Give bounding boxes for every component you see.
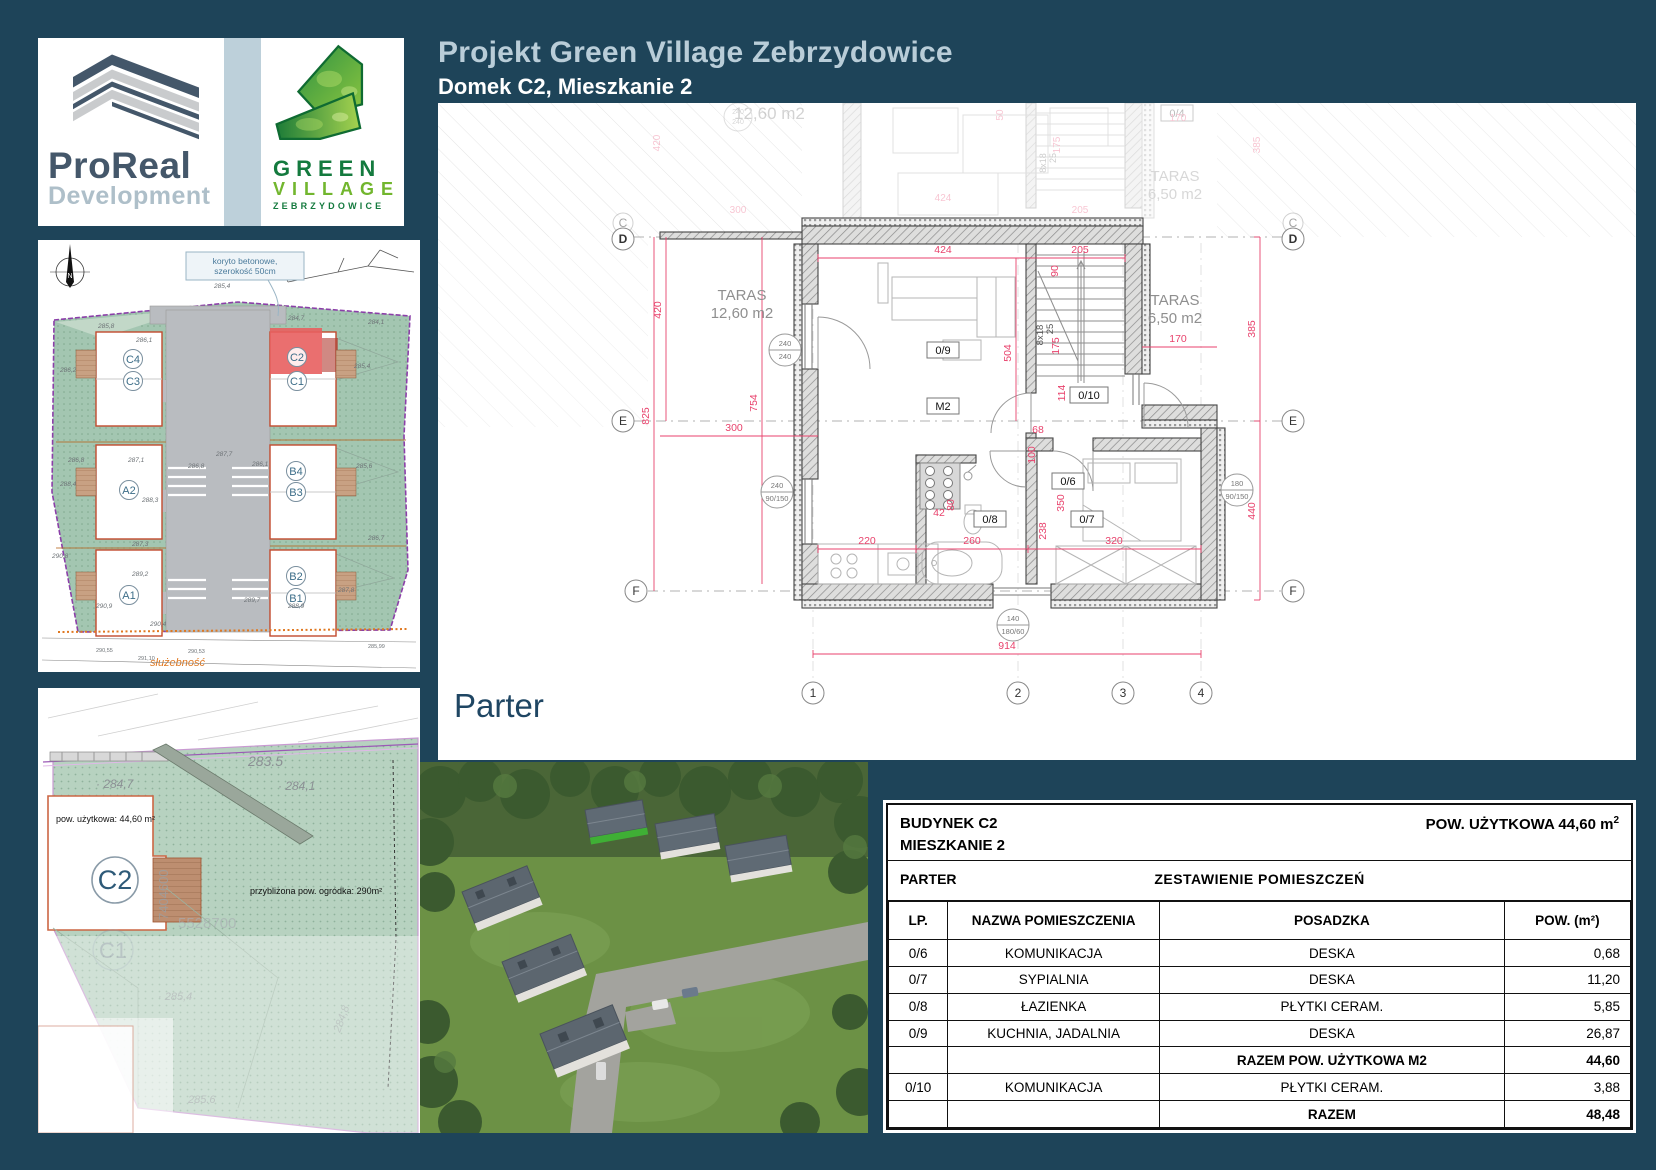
dim-label: 504 bbox=[1002, 344, 1014, 362]
page-subtitle: Domek C2, Mieszkanie 2 bbox=[438, 74, 953, 100]
cell-area: 48,48 bbox=[1504, 1101, 1630, 1128]
elevation-label: · 284,7 bbox=[96, 777, 135, 791]
cell-lp: 0/9 bbox=[889, 1020, 948, 1047]
grid-e-left: E bbox=[619, 414, 627, 428]
grid-f-right: F bbox=[1289, 584, 1296, 598]
window-label: 180/60 bbox=[1002, 627, 1025, 636]
grid-2: 2 bbox=[1015, 686, 1022, 700]
garden-plan-panel: pow. użytkowa: 44,60 m² C2 C1 7404600 55… bbox=[38, 688, 420, 1133]
survey-hatch bbox=[48, 694, 418, 742]
window-label: 180 bbox=[1231, 479, 1244, 488]
col-floor: POSADZKA bbox=[1159, 902, 1504, 940]
ghost-window-label: 240 bbox=[732, 109, 744, 116]
page-title: Projekt Green Village Zebrzydowice bbox=[438, 36, 953, 70]
estate-render-photo bbox=[420, 762, 868, 1133]
usable-area-label: pow. użytkowa: 44,60 m² bbox=[56, 814, 155, 824]
dim-label: 170 bbox=[1169, 333, 1187, 345]
dim-label: 350 bbox=[1055, 494, 1067, 512]
cell-lp bbox=[889, 1101, 948, 1128]
grid-4: 4 bbox=[1198, 686, 1205, 700]
cell-lp: 0/7 bbox=[889, 967, 948, 994]
window-label: 240 bbox=[779, 339, 792, 348]
project-sheet: { "header": { "title": "Projekt Green Vi… bbox=[0, 0, 1656, 1170]
garden-area-label: przybliżona pow. ogródka: 290m² bbox=[250, 886, 382, 896]
dim-label: 320 bbox=[1105, 535, 1123, 547]
room-label-06: 0/6 bbox=[1060, 476, 1075, 488]
table-row-grand-total: RAZEM 48,48 bbox=[889, 1101, 1631, 1128]
cell-floor: DESKA bbox=[1159, 967, 1504, 994]
ghost-window-label: 240 bbox=[732, 119, 744, 126]
dim-label: 175 bbox=[1050, 337, 1062, 355]
table-row: 0/7 SYPIALNIA DESKA 11,20 bbox=[889, 967, 1631, 994]
unit-label-c2: C2 bbox=[98, 865, 133, 895]
dim-label: 205 bbox=[1072, 205, 1089, 216]
cell-lp bbox=[889, 1047, 948, 1074]
elevation-label: 288,4 bbox=[59, 481, 77, 488]
room-label-10: 0/10 bbox=[1078, 390, 1099, 402]
site-hatch bbox=[1217, 103, 1636, 237]
ghost-area-label: 12,60 m2 bbox=[734, 104, 805, 123]
dim-label: 424 bbox=[934, 244, 952, 256]
grid-d-left: D bbox=[619, 232, 628, 246]
cell-name: SYPIALNIA bbox=[948, 967, 1159, 994]
cell-lp: 0/6 bbox=[889, 940, 948, 967]
cell-area: 44,60 bbox=[1504, 1047, 1630, 1074]
dim-label: 68 bbox=[1032, 424, 1044, 436]
grid-d-right: D bbox=[1289, 232, 1298, 246]
proreal-name: ProReal bbox=[48, 147, 224, 184]
survey-numbers: 290,55 291,10 290,53 285,99 bbox=[96, 644, 385, 662]
window-label: 90/150 bbox=[766, 494, 789, 503]
cell-name bbox=[948, 1047, 1159, 1074]
room-label-m2: M2 bbox=[935, 401, 950, 413]
cell-floor: PŁYTKI CERAM. bbox=[1159, 993, 1504, 1020]
windows bbox=[805, 304, 1139, 595]
dim-label: 385 bbox=[1252, 136, 1263, 153]
table-row-total: RAZEM POW. UŻYTKOWA M2 44,60 bbox=[889, 1047, 1631, 1074]
elevation-label: 288,3 bbox=[141, 497, 159, 504]
cell-name: KOMUNIKACJA bbox=[948, 940, 1159, 967]
grid-3: 3 bbox=[1120, 686, 1127, 700]
cell-lp: 0/10 bbox=[889, 1074, 948, 1101]
ghost-stairs-label: 25 bbox=[1048, 153, 1058, 163]
taras-left-label: TARAS bbox=[718, 287, 767, 304]
gv-village: VILLAGE bbox=[273, 180, 400, 200]
dim-label: 100 bbox=[1026, 446, 1038, 464]
elevation-label: 285,4 bbox=[353, 363, 371, 370]
elevation-label: 285,4 bbox=[213, 283, 231, 290]
dim-label: 80 bbox=[945, 499, 957, 511]
unit-b2: B2 bbox=[289, 571, 302, 583]
table-header-row: LP. NAZWA POMIESZCZENIA POSADZKA POW. (m… bbox=[889, 902, 1631, 940]
coordinate-vertical: 7404600 bbox=[156, 869, 171, 920]
taras-left-area: 12,60 m2 bbox=[711, 305, 774, 322]
elevation-label: 287,8 bbox=[337, 587, 355, 594]
dim-label: 385 bbox=[1246, 320, 1258, 338]
table-subheader: PARTER ZESTAWIENIE POMIESZCZEŃ bbox=[888, 861, 1631, 901]
unit-b3: B3 bbox=[289, 487, 302, 499]
unit-a1: A1 bbox=[122, 590, 135, 602]
elevation-label: 285,6 bbox=[355, 463, 373, 470]
cell-floor: DESKA bbox=[1159, 940, 1504, 967]
cell-floor: RAZEM bbox=[1159, 1101, 1504, 1128]
garden-plan-drawing: pow. użytkowa: 44,60 m² C2 C1 7404600 55… bbox=[38, 688, 420, 1133]
gv-zebrzydowice: ZEBRZYDOWICE bbox=[273, 200, 400, 213]
dim-label: 42 bbox=[933, 507, 945, 519]
table-row: 0/8 ŁAZIENKA PŁYTKI CERAM. 5,85 bbox=[889, 993, 1631, 1020]
dim-label: 754 bbox=[748, 394, 760, 412]
floor-plan-drawing: 12,60 m2 0/4 TARAS 6,50 m2 424 300 205 1… bbox=[438, 103, 1636, 760]
list-title: ZESTAWIENIE POMIESZCZEŃ bbox=[888, 871, 1631, 887]
dim-label: 825 bbox=[640, 407, 652, 425]
elevation-label: 284,1 bbox=[367, 319, 385, 326]
table-row: 0/6 KOMUNIKACJA DESKA 0,68 bbox=[889, 940, 1631, 967]
dim-label: 175 bbox=[1052, 136, 1063, 153]
col-name: NAZWA POMIESZCZENIA bbox=[948, 902, 1159, 940]
proreal-sub: Development bbox=[48, 184, 224, 209]
elevation-label: 288,9 bbox=[287, 603, 305, 610]
dim-label: 420 bbox=[652, 134, 663, 151]
unit-c4: C4 bbox=[126, 354, 140, 366]
note-line1: koryto betonowe, bbox=[213, 256, 278, 266]
dim-label: 205 bbox=[1071, 244, 1089, 256]
table-row: 0/9 KUCHNIA, JADALNIA DESKA 26,87 bbox=[889, 1020, 1631, 1047]
room-table-panel: BUDYNEK C2 MIESZKANIE 2 POW. UŻYTKOWA 44… bbox=[883, 800, 1636, 1133]
ghost-taras-area: 6,50 m2 bbox=[1148, 186, 1202, 203]
green-village-logo: GREEN VILLAGE ZEBRZYDOWICE bbox=[261, 38, 404, 226]
cell-floor: PŁYTKI CERAM. bbox=[1159, 1074, 1504, 1101]
elevation-label: 285,8 bbox=[97, 323, 115, 330]
dim-label: 420 bbox=[652, 301, 664, 319]
survey-label: 285,99 bbox=[368, 644, 385, 650]
proreal-building-icon bbox=[48, 44, 224, 140]
elevation-label: 287,3 bbox=[131, 541, 149, 548]
table-row: 0/10 KOMUNIKACJA PŁYTKI CERAM. 3,88 bbox=[889, 1074, 1631, 1101]
cell-area: 3,88 bbox=[1504, 1074, 1630, 1101]
dim-label: 238 bbox=[1037, 522, 1049, 540]
window-label: 240 bbox=[779, 352, 792, 361]
elevation-label: 289,7 bbox=[243, 597, 261, 604]
green-village-icon bbox=[273, 44, 391, 152]
stairs-label: 25 bbox=[1045, 324, 1056, 335]
col-lp: LP. bbox=[889, 902, 948, 940]
dim-label: 170 bbox=[1170, 113, 1187, 124]
total-area-label: POW. UŻYTKOWA 44,60 m2 bbox=[1426, 813, 1619, 854]
elevation-label: 286,7 bbox=[367, 535, 385, 542]
elevation-label: 286,1 bbox=[135, 337, 153, 344]
gv-green: GREEN bbox=[273, 157, 400, 180]
ghost-taras: TARAS bbox=[1151, 168, 1200, 185]
site-plan-panel: C4 C3 C2 C1 A2 B4 B3 A1 B2 B1 285,1 285,… bbox=[38, 240, 420, 672]
dim-label: 50 bbox=[995, 109, 1006, 121]
survey-label: 290,53 bbox=[188, 649, 205, 655]
elevation-label: · 284,1 bbox=[278, 779, 315, 793]
elevation-label: 284,7 bbox=[287, 315, 305, 322]
site-hatch bbox=[438, 237, 648, 427]
elevation-label: 286,8 bbox=[67, 457, 85, 464]
dim-label: 260 bbox=[963, 535, 981, 547]
dim-label: 220 bbox=[858, 535, 876, 547]
house-c1-fragment bbox=[38, 1026, 133, 1133]
unit-c1: C1 bbox=[290, 376, 304, 388]
taras-right-label: TARAS bbox=[1151, 292, 1200, 309]
elevation-label: 286,1 bbox=[251, 461, 269, 468]
window-label: 240 bbox=[771, 481, 784, 490]
room-label-07: 0/7 bbox=[1079, 514, 1094, 526]
cell-area: 26,87 bbox=[1504, 1020, 1630, 1047]
building-label: BUDYNEK C2 bbox=[900, 813, 1005, 835]
level-label: Parter bbox=[454, 687, 544, 725]
rooms-table: LP. NAZWA POMIESZCZENIA POSADZKA POW. (m… bbox=[888, 901, 1631, 1128]
taras-right-area: 6,50 m2 bbox=[1148, 310, 1202, 327]
cell-area: 11,20 bbox=[1504, 967, 1630, 994]
dim-label: 914 bbox=[998, 640, 1016, 652]
grid-f-left: F bbox=[632, 584, 639, 598]
cell-floor: RAZEM POW. UŻYTKOWA M2 bbox=[1159, 1047, 1504, 1074]
elevation-label: 286,8 bbox=[187, 463, 205, 470]
cell-name: KUCHNIA, JADALNIA bbox=[948, 1020, 1159, 1047]
logo-panel: ProReal Development GREEN VILLAGE ZEBRZY… bbox=[38, 38, 404, 226]
grid-e-right: E bbox=[1289, 414, 1297, 428]
cell-area: 0,68 bbox=[1504, 940, 1630, 967]
apartment-label: MIESZKANIE 2 bbox=[900, 835, 1005, 857]
room-label-08: 0/8 bbox=[982, 514, 997, 526]
unit-c3: C3 bbox=[126, 376, 140, 388]
compass-icon: N bbox=[50, 244, 90, 288]
cell-name: KOMUNIKACJA bbox=[948, 1074, 1159, 1101]
room-label-09: 0/9 bbox=[935, 345, 950, 357]
note-line2: szerokość 50cm bbox=[214, 266, 275, 276]
dim-label: 424 bbox=[935, 193, 952, 204]
dim-label: 90 bbox=[1049, 265, 1061, 277]
elevation-label: 286,2 bbox=[59, 367, 77, 374]
north-label: N bbox=[67, 273, 72, 280]
site-plan-drawing: C4 C3 C2 C1 A2 B4 B3 A1 B2 B1 285,1 285,… bbox=[38, 240, 420, 672]
floor-plan-panel: 12,60 m2 0/4 TARAS 6,50 m2 424 300 205 1… bbox=[438, 103, 1636, 760]
dim-label: 300 bbox=[725, 422, 743, 434]
dim-label: 300 bbox=[730, 205, 747, 216]
unit-c2: C2 bbox=[290, 352, 304, 364]
survey-label: 290,55 bbox=[96, 648, 113, 654]
cell-name bbox=[948, 1101, 1159, 1128]
grid-1: 1 bbox=[810, 686, 817, 700]
proreal-logo: ProReal Development bbox=[38, 38, 224, 226]
elevation-label: 289,2 bbox=[131, 571, 149, 578]
cell-name: ŁAZIENKA bbox=[948, 993, 1159, 1020]
coordinate-horizontal: 5528700 bbox=[178, 915, 236, 932]
elevation-label: 283.5 bbox=[247, 753, 283, 769]
elevation-label: 290,9 bbox=[95, 603, 113, 610]
cell-floor: DESKA bbox=[1159, 1020, 1504, 1047]
elevation-label: 290,8 bbox=[51, 553, 69, 560]
elevation-label: 290,4 bbox=[149, 621, 167, 628]
unit-b4: B4 bbox=[289, 466, 302, 478]
dim-label: 114 bbox=[1056, 384, 1068, 401]
table-header: BUDYNEK C2 MIESZKANIE 2 POW. UŻYTKOWA 44… bbox=[888, 805, 1631, 861]
retaining-wall bbox=[50, 752, 168, 761]
logo-divider bbox=[224, 38, 261, 226]
unit-a2: A2 bbox=[122, 485, 135, 497]
cell-area: 5,85 bbox=[1504, 993, 1630, 1020]
estate-render bbox=[420, 762, 868, 1133]
col-area: POW. (m²) bbox=[1504, 902, 1630, 940]
elevation-label: 287,7 bbox=[215, 451, 233, 458]
elevation-label: 287,1 bbox=[127, 457, 145, 464]
cell-lp: 0/8 bbox=[889, 993, 948, 1020]
window-label: 140 bbox=[1007, 614, 1020, 623]
window-label: 90/150 bbox=[1226, 492, 1249, 501]
ghost-stairs-label: 8x18 bbox=[1038, 153, 1048, 173]
dim-label: 440 bbox=[1246, 502, 1258, 520]
page-header: Projekt Green Village Zebrzydowice Domek… bbox=[438, 36, 953, 100]
